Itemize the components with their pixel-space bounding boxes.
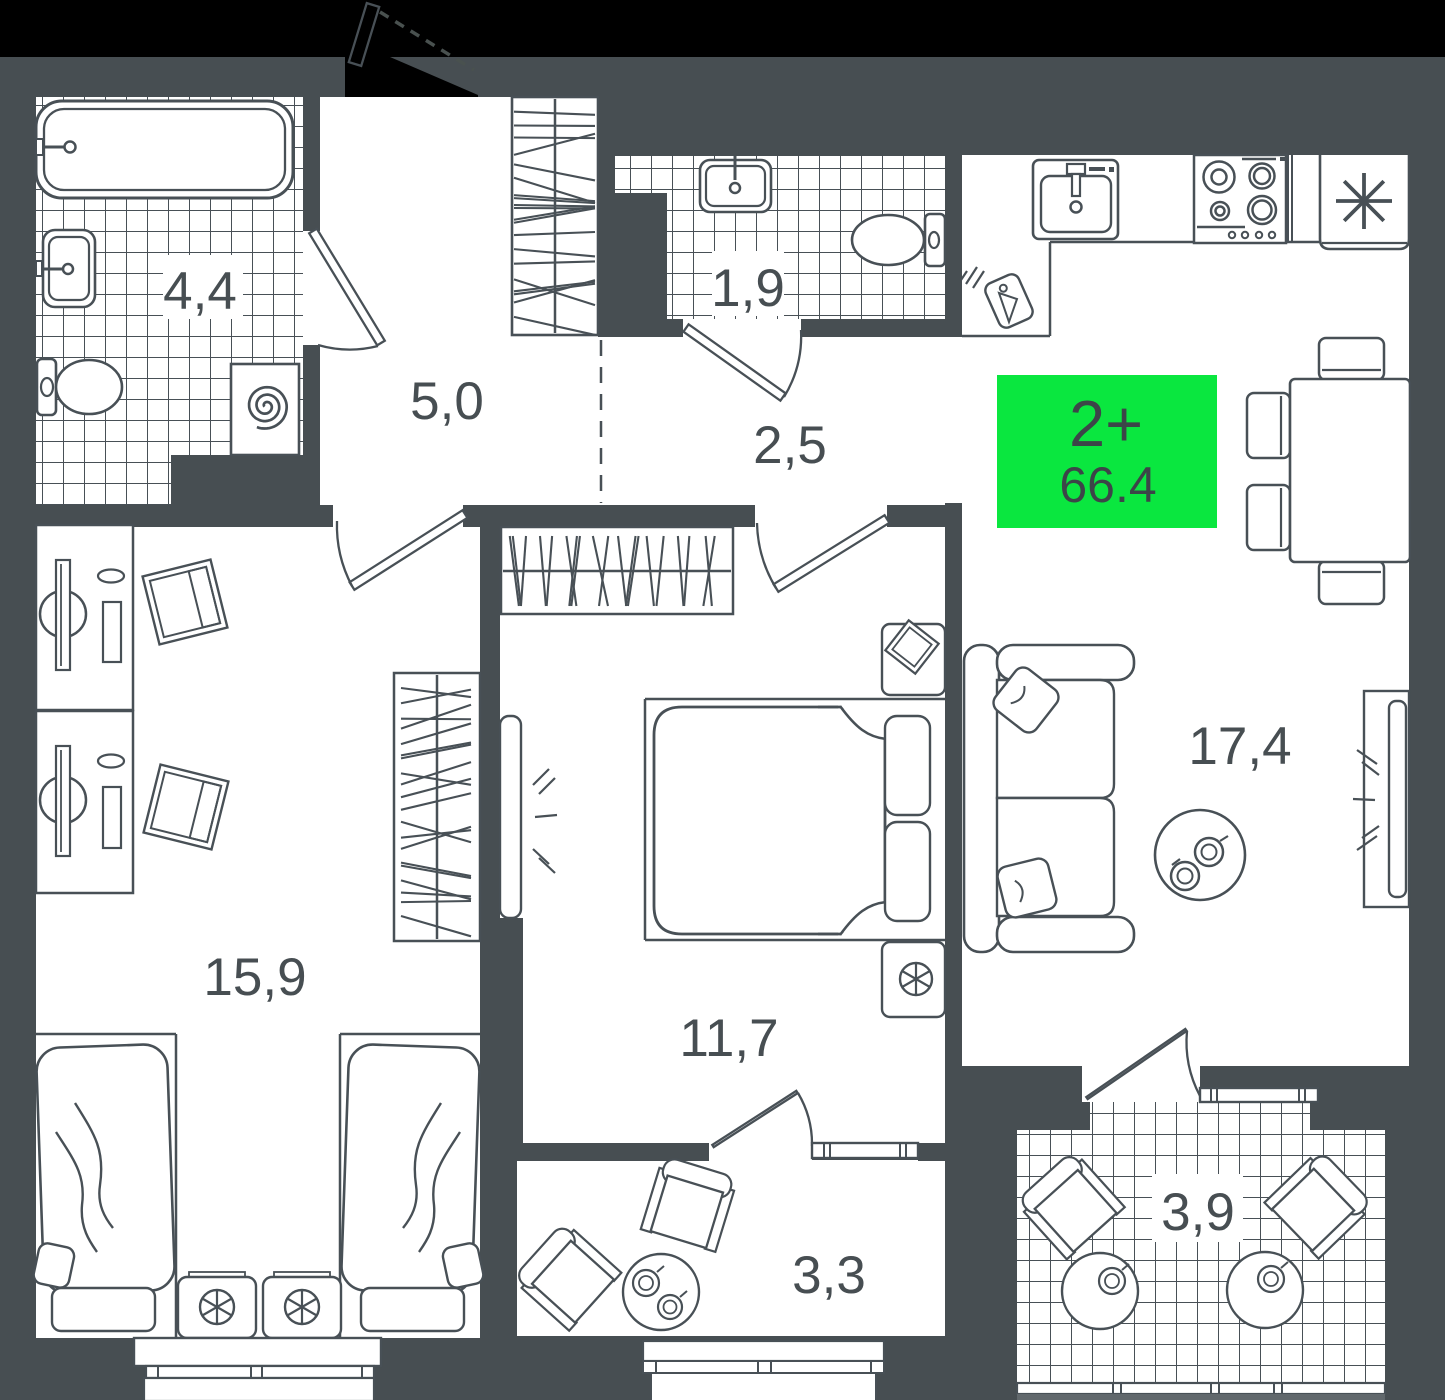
svg-text:17,4: 17,4 [1188, 717, 1291, 776]
svg-text:5,0: 5,0 [410, 372, 484, 431]
svg-text:2,5: 2,5 [753, 416, 827, 475]
svg-text:3,9: 3,9 [1161, 1183, 1235, 1242]
svg-text:1,9: 1,9 [711, 259, 785, 318]
svg-text:2+: 2+ [1069, 387, 1143, 460]
svg-text:4,4: 4,4 [163, 262, 237, 321]
svg-text:11,7: 11,7 [679, 1009, 778, 1068]
svg-text:3,3: 3,3 [792, 1246, 866, 1305]
svg-text:66.4: 66.4 [1059, 457, 1156, 513]
svg-text:15,9: 15,9 [203, 948, 306, 1007]
